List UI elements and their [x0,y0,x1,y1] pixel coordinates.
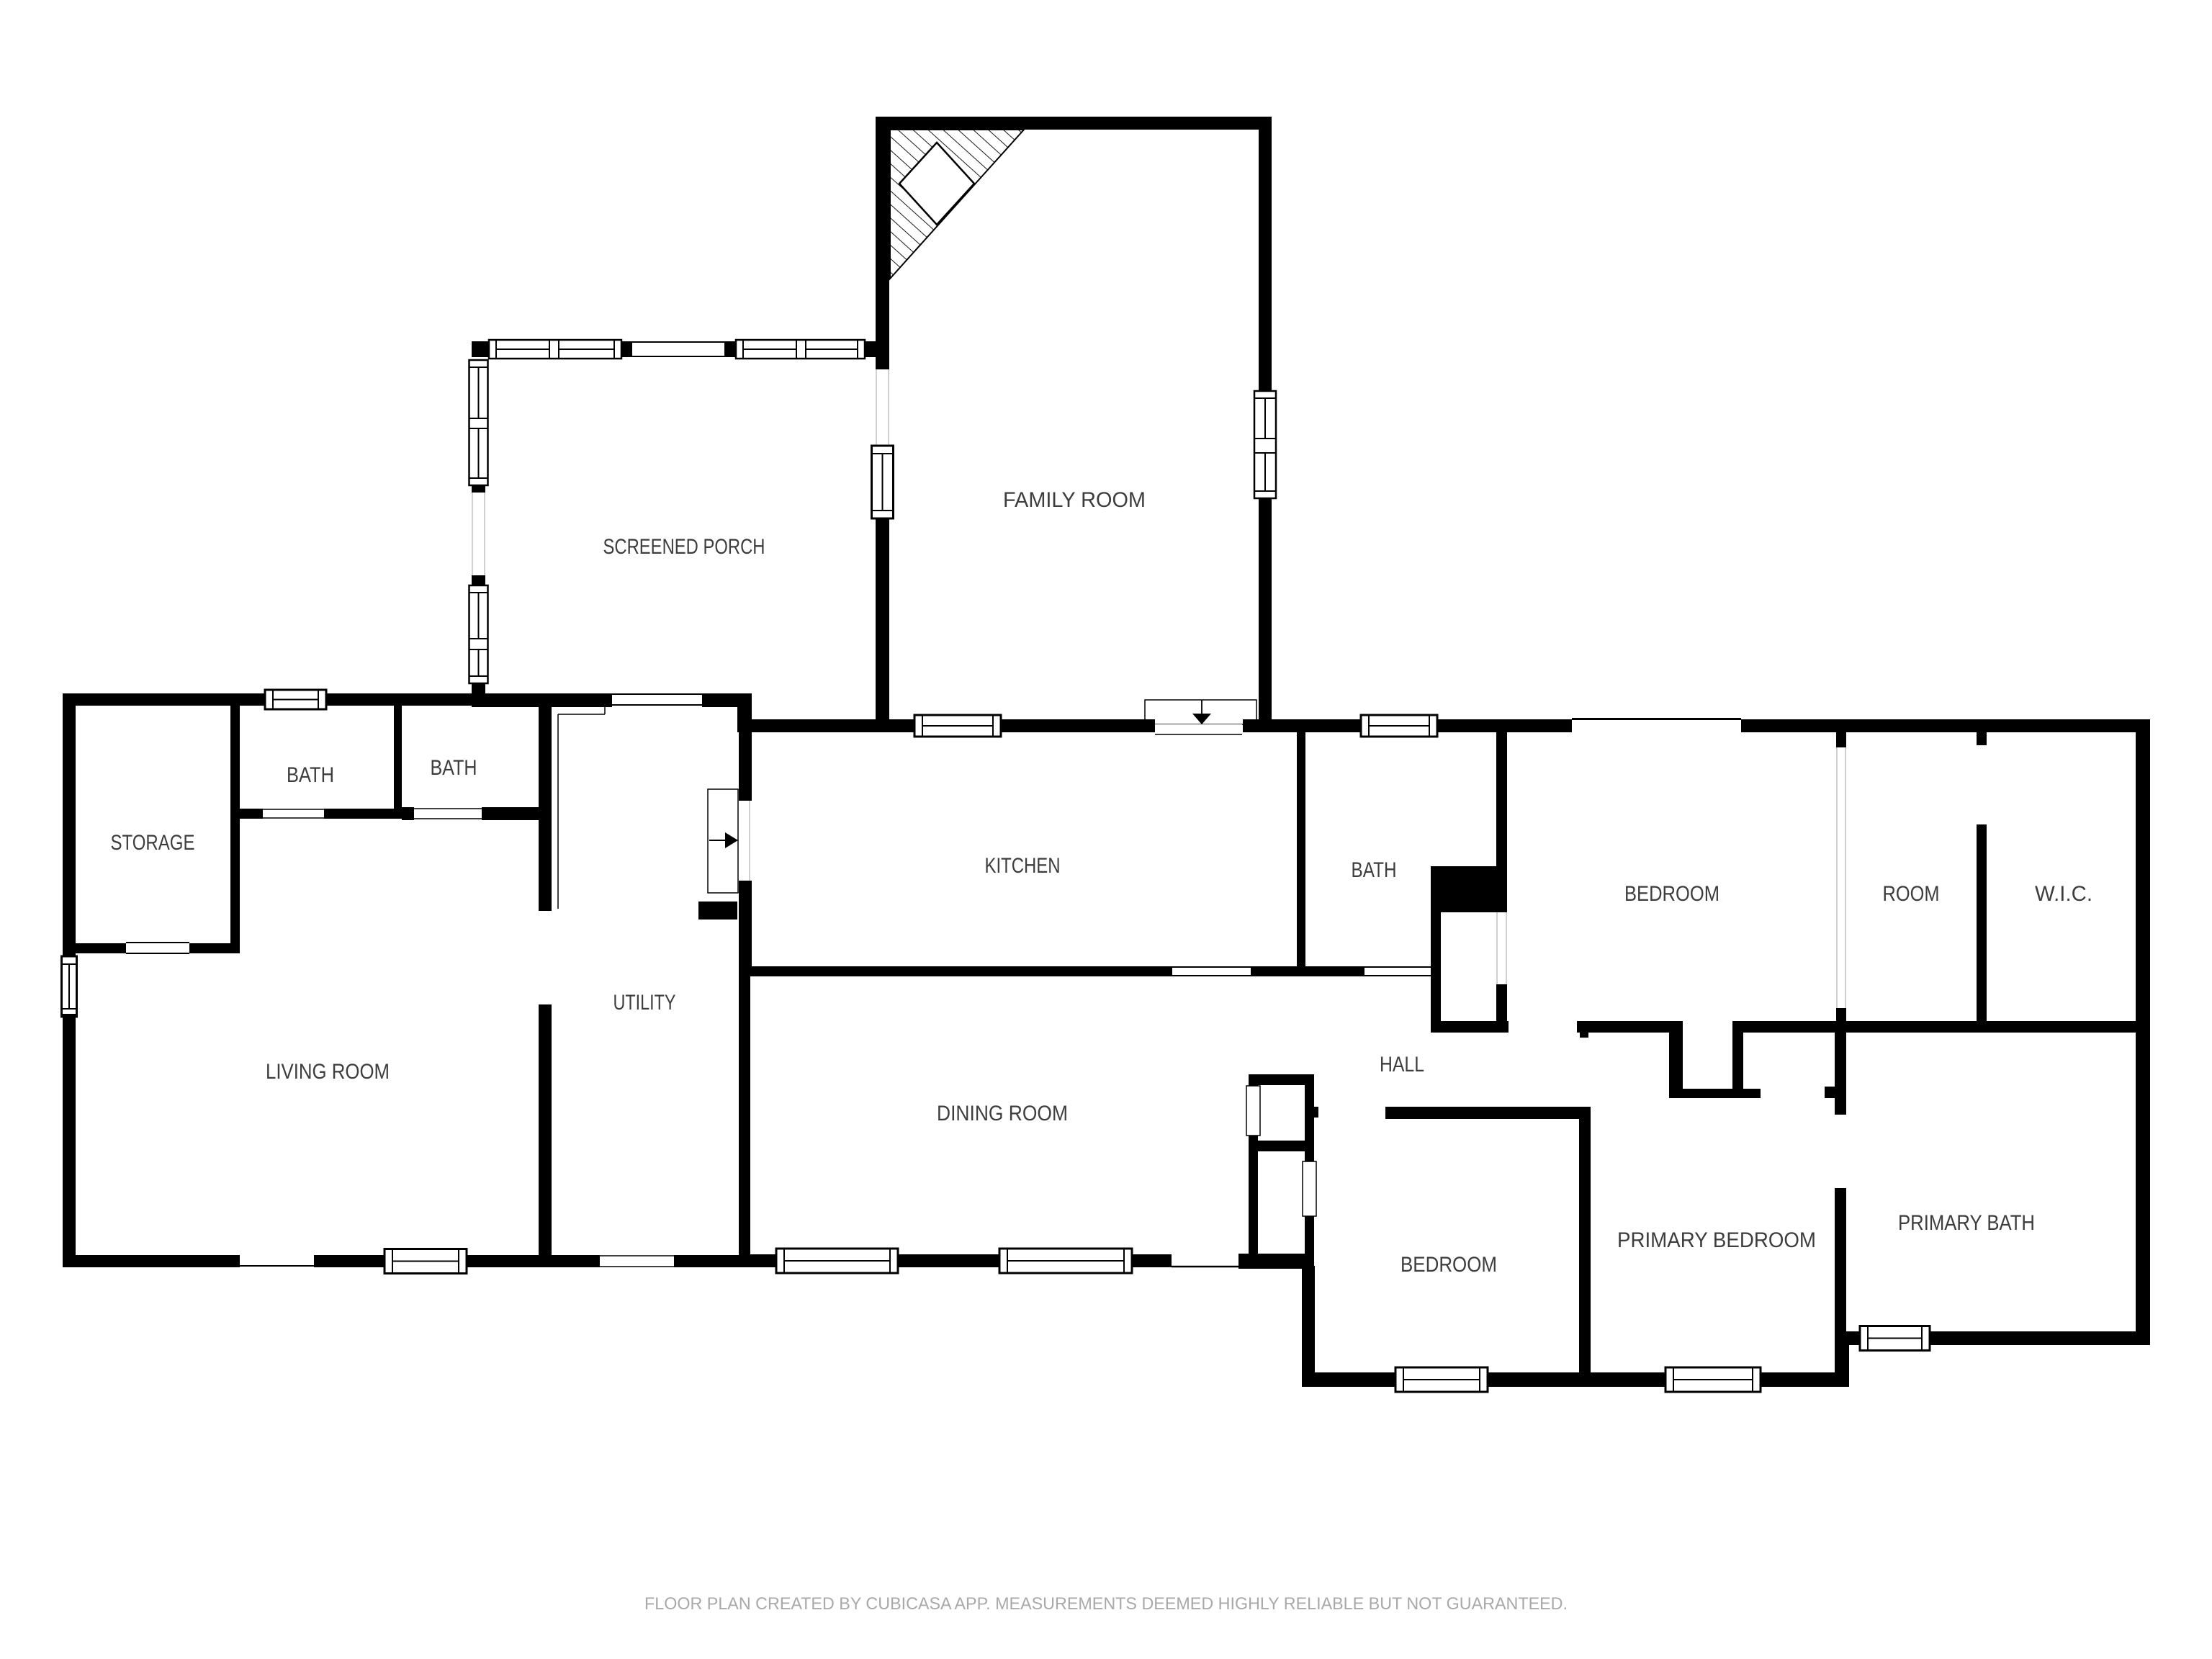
svg-text:ROOM: ROOM [1883,882,1940,906]
svg-text:PRIMARY BATH: PRIMARY BATH [1898,1211,2035,1235]
svg-text:KITCHEN: KITCHEN [985,854,1061,878]
svg-text:HALL: HALL [1380,1053,1424,1076]
svg-text:DINING ROOM: DINING ROOM [937,1102,1068,1125]
svg-text:PRIMARY BEDROOM: PRIMARY BEDROOM [1617,1228,1816,1252]
svg-text:BATH: BATH [1352,858,1397,882]
svg-text:FAMILY ROOM: FAMILY ROOM [1003,488,1146,512]
svg-text:BEDROOM: BEDROOM [1624,882,1719,906]
svg-text:STORAGE: STORAGE [111,831,195,855]
svg-text:FLOOR PLAN CREATED BY CUBICASA: FLOOR PLAN CREATED BY CUBICASA APP. MEAS… [644,1594,1568,1614]
svg-text:BEDROOM: BEDROOM [1401,1253,1497,1277]
svg-text:BATH: BATH [431,756,477,780]
svg-text:SCREENED PORCH: SCREENED PORCH [603,535,765,559]
svg-text:UTILITY: UTILITY [613,991,676,1015]
svg-text:W.I.C.: W.I.C. [2035,882,2092,906]
svg-text:BATH: BATH [287,763,334,787]
svg-text:LIVING ROOM: LIVING ROOM [266,1060,390,1084]
